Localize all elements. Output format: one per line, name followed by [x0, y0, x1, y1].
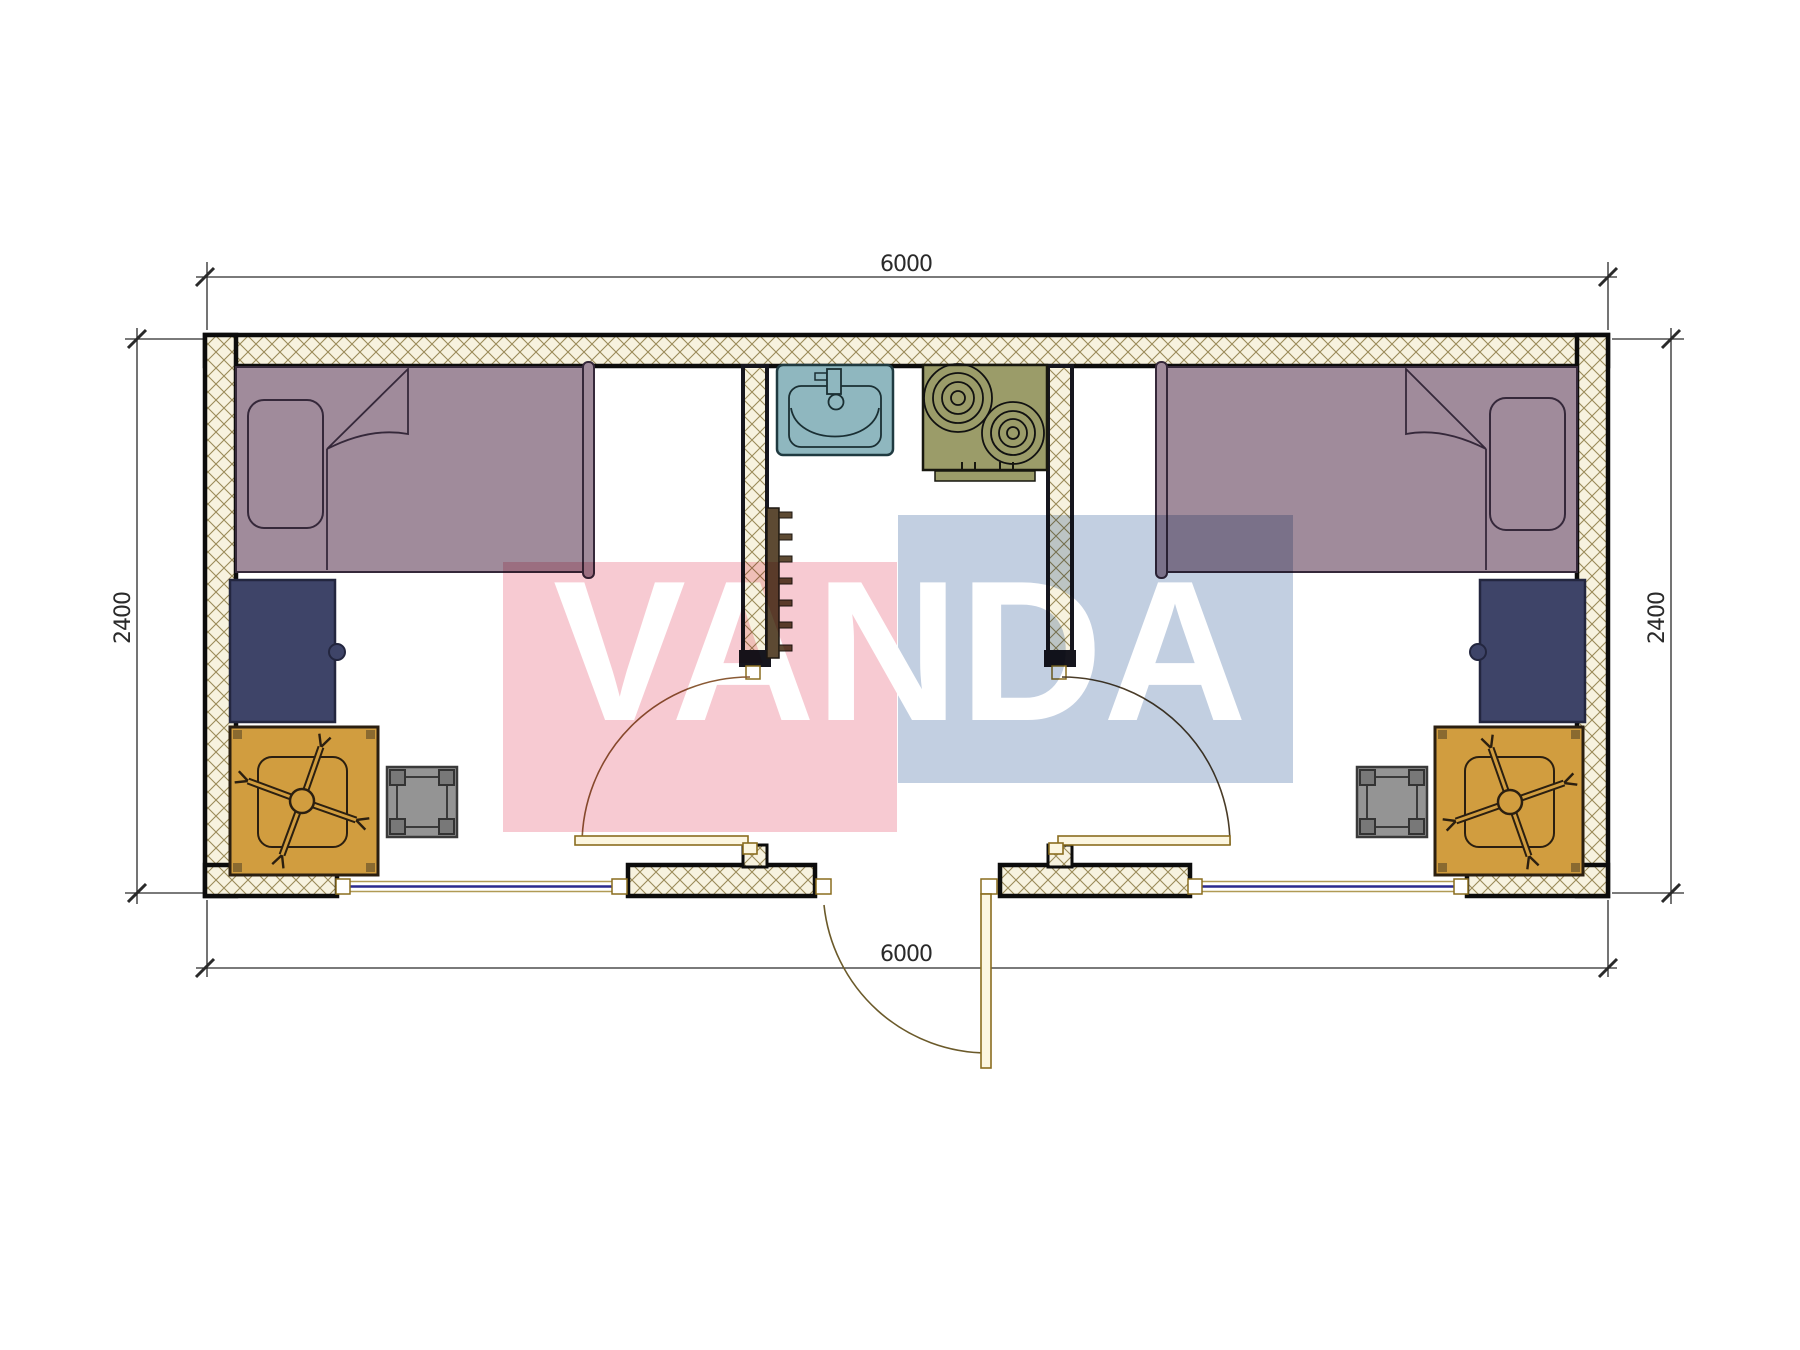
stove: [923, 364, 1047, 481]
watermark-pink-block: [503, 562, 897, 832]
sink: [777, 365, 893, 455]
wall-bottom-left-tee: [628, 865, 815, 896]
door-frame-right: [981, 879, 997, 894]
door-frame-left: [816, 879, 831, 894]
floor-plan-drawing: VANDA: [0, 0, 1800, 1350]
desk-orange-left: [230, 727, 378, 875]
wall-bottom-right-tee: [1000, 865, 1190, 896]
door-leaf: [1058, 836, 1230, 845]
dimension-left: [125, 328, 212, 904]
bed-left: [236, 362, 594, 578]
dimension-right-value: 2400: [1645, 592, 1670, 644]
window-left: [336, 879, 627, 894]
door-hinge: [1049, 843, 1063, 854]
chair-hub: [290, 789, 314, 813]
chair-hub: [1498, 790, 1522, 814]
desk-orange-right: [1435, 727, 1583, 875]
stool-right: [1357, 767, 1427, 837]
door-leaf: [575, 836, 748, 845]
stool-left: [387, 767, 457, 837]
dimension-bottom-value: 6000: [880, 942, 932, 967]
desk-knob: [1470, 644, 1486, 660]
faucet: [827, 369, 841, 394]
dimension-left-value: 2400: [111, 592, 136, 644]
window-right: [1188, 879, 1468, 894]
entrance-door: [816, 879, 997, 1068]
faucet-spout: [815, 373, 827, 380]
watermark: [503, 515, 1293, 832]
desk-navy-left: [230, 580, 345, 722]
stove-vent: [935, 471, 1035, 481]
watermark-blue-block: [898, 515, 1293, 783]
wall-top: [205, 335, 1608, 366]
desk-knob: [329, 644, 345, 660]
door-hinge: [743, 843, 757, 854]
desk-navy-right: [1470, 580, 1585, 722]
bed-left-footboard: [583, 362, 594, 578]
floor-plan-canvas: VANDA: [0, 0, 1800, 1350]
door-swing-arc: [824, 905, 988, 1053]
door-leaf: [981, 894, 991, 1068]
dimension-top-value: 6000: [880, 252, 932, 277]
